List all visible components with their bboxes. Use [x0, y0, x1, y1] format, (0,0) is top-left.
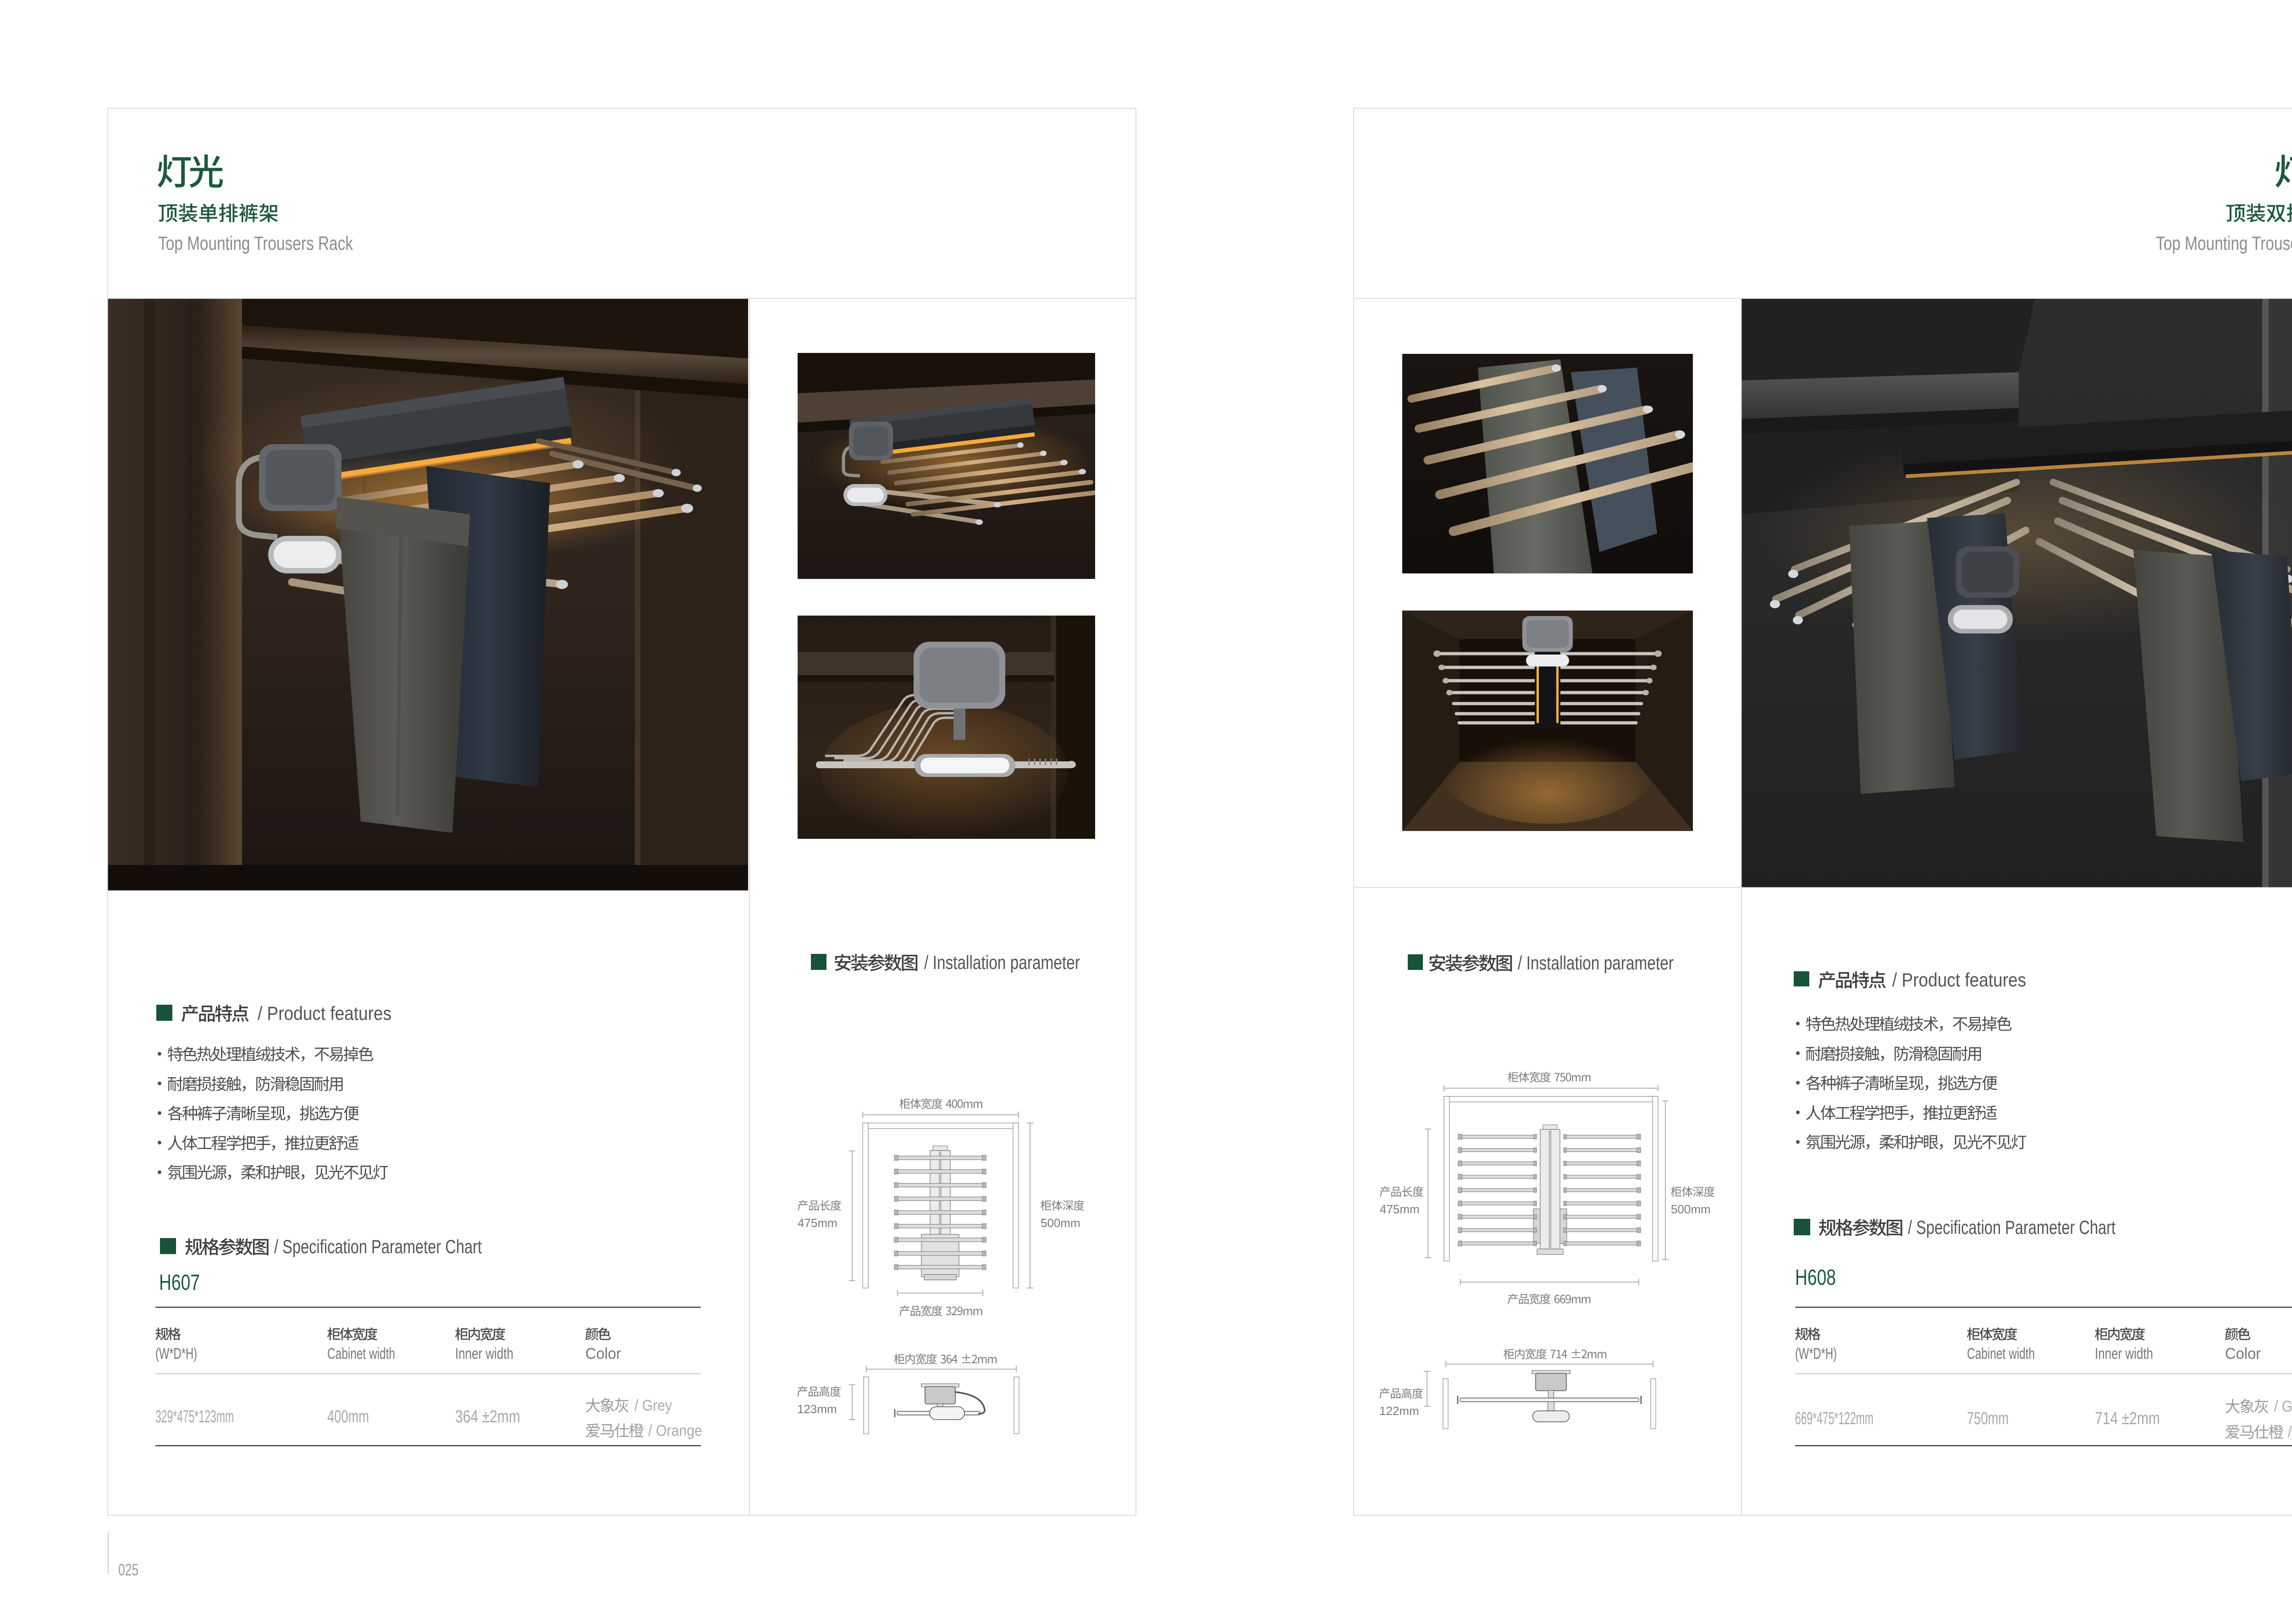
svg-text:750mm: 750mm — [1967, 1409, 2009, 1428]
svg-text:Top Mounting Trousers Rack: Top Mounting Trousers Rack — [158, 232, 353, 254]
svg-text:/ Product features: / Product features — [258, 1002, 391, 1024]
svg-text:Color: Color — [2225, 1345, 2261, 1362]
svg-text:/ Specification Parameter Cha: / Specification Parameter Chart — [1908, 1217, 2116, 1238]
svg-text:364 ±2mm: 364 ±2mm — [455, 1407, 520, 1426]
svg-text:Top Mounting Trousers Rack: Top Mounting Trousers Rack — [2156, 232, 2292, 254]
svg-text:H607: H607 — [159, 1271, 200, 1295]
svg-text:Inner width: Inner width — [2095, 1345, 2153, 1362]
svg-text:/ Product features: / Product features — [1892, 969, 2026, 991]
svg-text:/ Grey: / Grey — [634, 1397, 672, 1414]
svg-text:400mm: 400mm — [327, 1407, 369, 1426]
svg-text:475mm: 475mm — [1380, 1202, 1420, 1216]
svg-text:/ Installation parameter: / Installation parameter — [924, 952, 1080, 973]
svg-text:329*475*123mm: 329*475*123mm — [155, 1407, 234, 1426]
svg-text:/ Specification Parameter Cha: / Specification Parameter Chart — [274, 1236, 482, 1257]
svg-text:(W*D*H): (W*D*H) — [1795, 1345, 1837, 1362]
svg-text:500mm: 500mm — [1041, 1216, 1080, 1230]
svg-text:669*475*122mm: 669*475*122mm — [1795, 1409, 1873, 1428]
svg-text:714 ±2mm: 714 ±2mm — [2095, 1409, 2160, 1428]
svg-text:Color: Color — [585, 1345, 621, 1362]
svg-text:122mm: 122mm — [1379, 1404, 1419, 1418]
svg-text:025: 025 — [118, 1560, 138, 1579]
svg-text:123mm: 123mm — [797, 1402, 837, 1416]
svg-text:Inner width: Inner width — [455, 1345, 513, 1362]
svg-text:Cabinet width: Cabinet width — [1967, 1345, 2035, 1362]
svg-text:H608: H608 — [1795, 1266, 1836, 1290]
svg-text:500mm: 500mm — [1671, 1202, 1711, 1216]
svg-text:(W*D*H): (W*D*H) — [155, 1345, 197, 1362]
svg-text:475mm: 475mm — [798, 1216, 837, 1230]
svg-text:/ Installation parameter: / Installation parameter — [1518, 952, 1674, 974]
svg-text:/ Orange: / Orange — [2288, 1423, 2292, 1441]
svg-text:Cabinet width: Cabinet width — [327, 1345, 395, 1362]
svg-text:/ Grey: / Grey — [2274, 1398, 2292, 1415]
svg-text:/ Orange: / Orange — [648, 1422, 702, 1439]
